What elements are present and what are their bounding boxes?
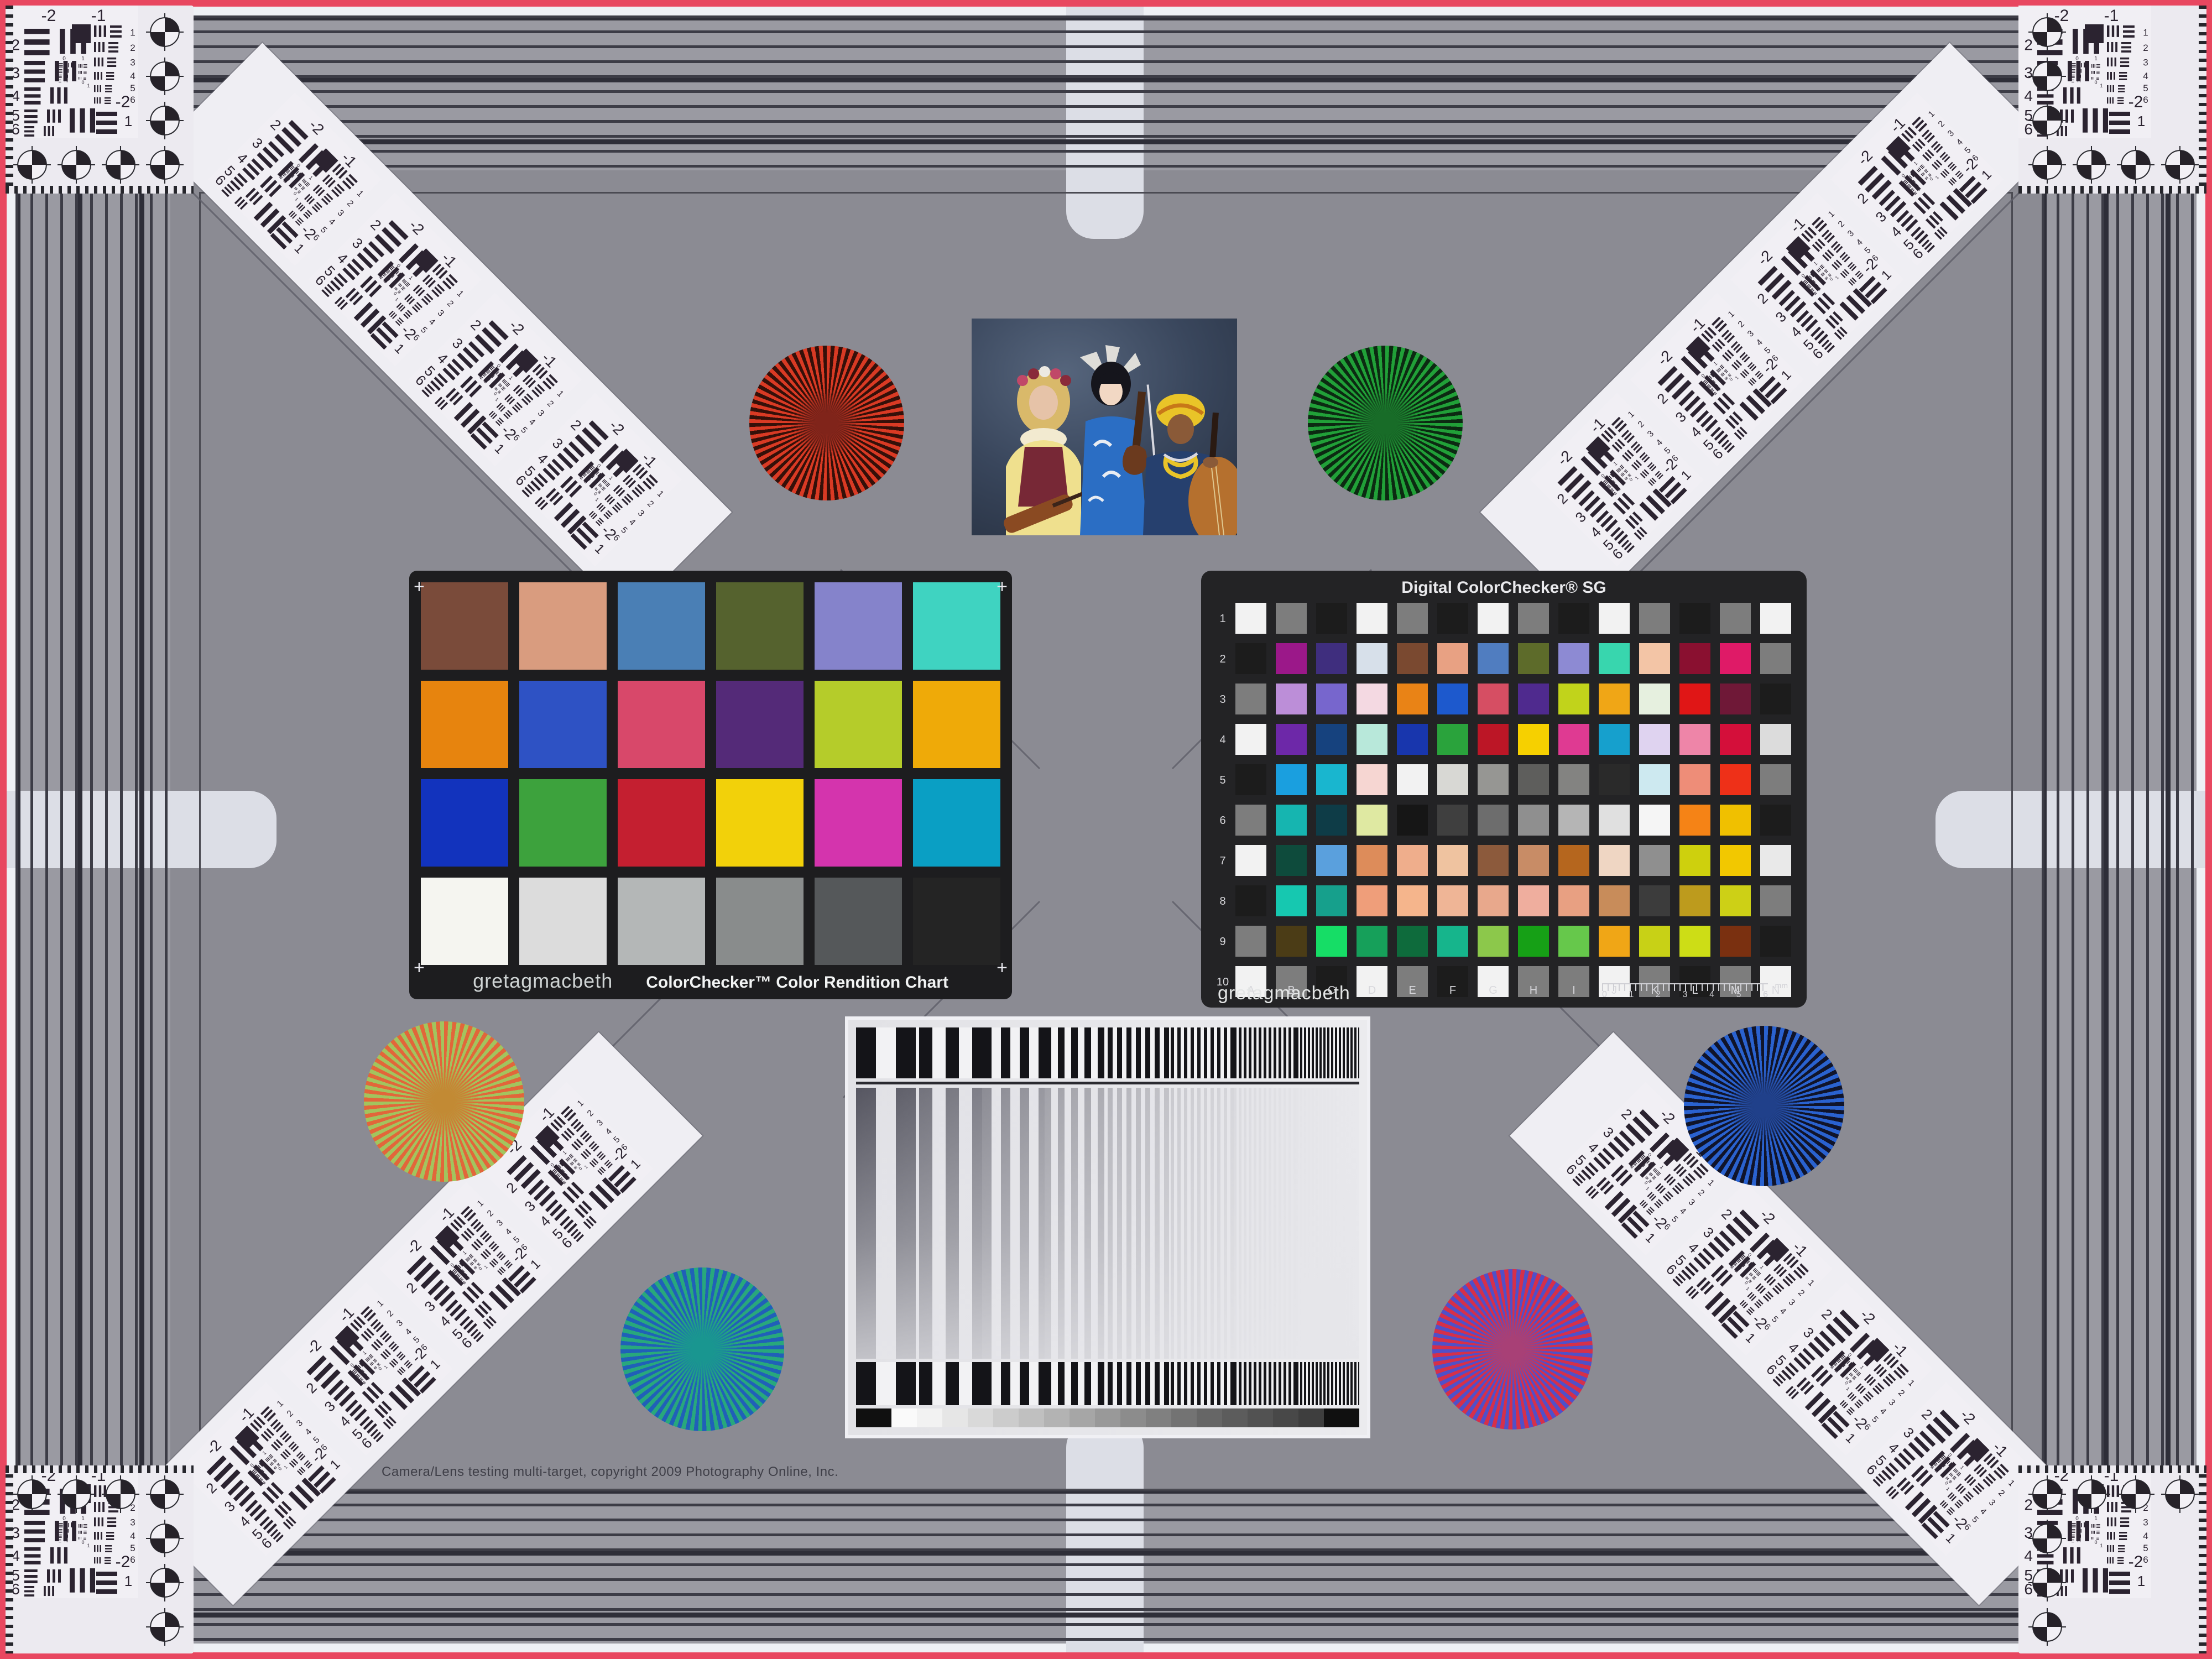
sg-patch bbox=[1639, 603, 1670, 634]
ruler-number: 3 bbox=[1683, 990, 1688, 1000]
sg-patch bbox=[1639, 845, 1670, 876]
sg-patch bbox=[1518, 764, 1549, 795]
sg-patch bbox=[1235, 684, 1266, 714]
sg-patch bbox=[1478, 603, 1509, 634]
sg-patch bbox=[1599, 926, 1630, 957]
registration-plus-icon: + bbox=[997, 584, 1008, 589]
frequency-segment bbox=[1045, 1027, 1108, 1078]
sg-patch bbox=[1679, 643, 1710, 674]
colorchecker-24-chart: + + + + gretagmacbeth ColorChecker™ Colo… bbox=[409, 571, 1012, 999]
grayscale-step-wedge bbox=[856, 1408, 1359, 1427]
colorchecker-patch-grid bbox=[421, 582, 1000, 965]
corner-block-bottom-right bbox=[2018, 1465, 2206, 1653]
siemens-star-amber bbox=[364, 1021, 524, 1182]
sg-patch bbox=[1679, 724, 1710, 755]
cc-patch bbox=[815, 779, 902, 867]
sg-patch bbox=[1276, 724, 1307, 755]
sg-patch bbox=[1276, 764, 1307, 795]
sg-patch bbox=[1478, 724, 1509, 755]
sg-patch bbox=[1720, 845, 1751, 876]
wedge-step bbox=[917, 1408, 942, 1427]
sg-patch bbox=[1599, 764, 1630, 795]
wedge-step bbox=[856, 1408, 891, 1427]
sg-patch bbox=[1235, 643, 1266, 674]
sg-patch bbox=[1276, 885, 1307, 916]
wedge-step bbox=[1070, 1408, 1095, 1427]
quadrant-circle-icon bbox=[58, 1475, 95, 1513]
cc-patch bbox=[913, 779, 1000, 867]
sg-patch bbox=[1316, 684, 1347, 714]
quadrant-circle-icon bbox=[146, 1564, 184, 1601]
quadrant-circle-icon bbox=[2028, 146, 2066, 184]
sg-patch bbox=[1357, 724, 1387, 755]
sg-col-label: E bbox=[1401, 984, 1423, 997]
siemens-star-red bbox=[749, 346, 904, 500]
quadrant-circle-icon bbox=[146, 1608, 184, 1646]
quadrant-circle-icon bbox=[146, 102, 184, 139]
quadrant-circle-icon bbox=[2028, 1608, 2066, 1646]
sg-title-label: Digital ColorChecker® SG bbox=[1201, 578, 1807, 597]
sg-patch bbox=[1235, 603, 1266, 634]
cc-patch bbox=[716, 582, 804, 670]
quadrant-circle-icon bbox=[146, 58, 184, 95]
sg-patch bbox=[1235, 764, 1266, 795]
frequency-segment bbox=[1234, 1027, 1297, 1078]
ruler-number: 2 bbox=[1656, 990, 1661, 1000]
wedge-step bbox=[1146, 1408, 1171, 1427]
sg-patch bbox=[1316, 805, 1347, 836]
ruler-number: 6 bbox=[1763, 990, 1768, 1000]
frequency-segment bbox=[982, 1362, 1045, 1405]
quadrant-circle-icon bbox=[2073, 1475, 2110, 1513]
registration-plus-icon: + bbox=[414, 584, 425, 589]
sg-patch bbox=[1760, 643, 1791, 674]
quadrant-circle-icon bbox=[2028, 13, 2066, 51]
sg-patch bbox=[1760, 764, 1791, 795]
sg-patch bbox=[1760, 845, 1791, 876]
sg-col-label: I bbox=[1563, 984, 1585, 997]
wedge-step bbox=[1324, 1408, 1359, 1427]
sg-patch bbox=[1276, 805, 1307, 836]
quadrant-circle-icon bbox=[146, 1520, 184, 1557]
cc-patch bbox=[815, 582, 902, 670]
cc-patch bbox=[716, 681, 804, 768]
sg-patch bbox=[1518, 603, 1549, 634]
sg-patch bbox=[1558, 643, 1589, 674]
sg-patch bbox=[1720, 603, 1751, 634]
sg-patch bbox=[1518, 684, 1549, 714]
quadrant-circle-icon bbox=[2161, 1475, 2199, 1513]
sg-patch bbox=[1437, 643, 1468, 674]
wedge-step bbox=[1298, 1408, 1324, 1427]
sg-patch bbox=[1679, 805, 1710, 836]
corner-block-top-right bbox=[2018, 6, 2206, 194]
sg-patch bbox=[1437, 764, 1468, 795]
sg-patch bbox=[1357, 764, 1387, 795]
sg-patch bbox=[1558, 926, 1589, 957]
sg-patch bbox=[1316, 643, 1347, 674]
sg-patch bbox=[1437, 885, 1468, 916]
quadrant-circle-icon bbox=[13, 1475, 51, 1513]
sg-patch bbox=[1599, 603, 1630, 634]
sg-patch bbox=[1760, 805, 1791, 836]
quadrant-circle-icon bbox=[102, 1475, 139, 1513]
sg-patch bbox=[1357, 805, 1387, 836]
wedge-step bbox=[1197, 1408, 1222, 1427]
sg-patch bbox=[1639, 805, 1670, 836]
sg-patch bbox=[1518, 845, 1549, 876]
sg-patch bbox=[1720, 764, 1751, 795]
cc-patch bbox=[815, 878, 902, 965]
sg-patch bbox=[1760, 684, 1791, 714]
cc-patch bbox=[618, 681, 705, 768]
sg-patch bbox=[1558, 764, 1589, 795]
frequency-segment bbox=[856, 1362, 919, 1405]
wedge-step bbox=[993, 1408, 1019, 1427]
sg-patch bbox=[1316, 885, 1347, 916]
sg-patch bbox=[1518, 885, 1549, 916]
cc-patch bbox=[421, 582, 508, 670]
sg-patch bbox=[1397, 684, 1428, 714]
musicians-reference-photo bbox=[972, 319, 1237, 535]
quadrant-circle-icon bbox=[2117, 146, 2154, 184]
frequency-bars-top bbox=[856, 1027, 1359, 1078]
ruler-number: 4 bbox=[1709, 990, 1714, 1000]
quadrant-circle-icon bbox=[2073, 146, 2110, 184]
sg-patch bbox=[1679, 684, 1710, 714]
sg-patch bbox=[1437, 926, 1468, 957]
frequency-segment bbox=[1296, 1362, 1359, 1405]
sg-patch bbox=[1397, 643, 1428, 674]
sg-patch bbox=[1397, 764, 1428, 795]
copyright-text: Camera/Lens testing multi-target, copyri… bbox=[382, 1464, 838, 1480]
edge-tick-ruler bbox=[6, 1465, 13, 1653]
quadrant-circle-icon bbox=[2028, 58, 2066, 95]
quadrant-circle-icon bbox=[2028, 1475, 2066, 1513]
sg-patch bbox=[1639, 643, 1670, 674]
sg-col-label: G bbox=[1482, 984, 1504, 997]
colorchecker-title-label: ColorChecker™ Color Rendition Chart bbox=[646, 973, 948, 992]
cc-patch bbox=[815, 681, 902, 768]
frequency-segment bbox=[919, 1362, 982, 1405]
wedge-step bbox=[1019, 1408, 1044, 1427]
sg-patch bbox=[1679, 885, 1710, 916]
sg-patch bbox=[1639, 926, 1670, 957]
usaf-resolution-chart bbox=[6, 6, 138, 138]
sg-patch bbox=[1679, 845, 1710, 876]
frequency-bars-bottom bbox=[856, 1362, 1359, 1405]
frequency-segment bbox=[1234, 1362, 1297, 1405]
sg-patch bbox=[1599, 885, 1630, 916]
sg-patch bbox=[1437, 805, 1468, 836]
sg-patch bbox=[1478, 805, 1509, 836]
cc-patch bbox=[913, 878, 1000, 965]
sg-patch bbox=[1316, 603, 1347, 634]
sg-patch bbox=[1397, 926, 1428, 957]
quadrant-circle-icon bbox=[2028, 102, 2066, 139]
siemens-star-blue bbox=[1684, 1026, 1844, 1186]
sg-patch bbox=[1316, 926, 1347, 957]
sg-brand-label: gretagmacbeth bbox=[1218, 983, 1350, 1004]
ruler-number: 1 bbox=[1629, 990, 1634, 1000]
sg-row-label: 6 bbox=[1214, 815, 1231, 827]
sg-patch bbox=[1235, 885, 1266, 916]
cc-patch bbox=[421, 878, 508, 965]
cc-patch bbox=[618, 582, 705, 670]
sg-patch bbox=[1478, 643, 1509, 674]
wedge-step bbox=[891, 1408, 917, 1427]
sg-patch bbox=[1478, 926, 1509, 957]
sg-patch bbox=[1397, 724, 1428, 755]
sg-patch bbox=[1639, 885, 1670, 916]
sg-patch bbox=[1397, 885, 1428, 916]
wedge-step bbox=[942, 1408, 968, 1427]
sg-patch bbox=[1276, 926, 1307, 957]
sg-patch bbox=[1558, 724, 1589, 755]
sg-patch bbox=[1639, 684, 1670, 714]
sg-patch bbox=[1235, 845, 1266, 876]
edge-tick-ruler bbox=[2018, 186, 2206, 194]
sg-patch bbox=[1357, 643, 1387, 674]
sg-row-label: 3 bbox=[1214, 693, 1231, 706]
sg-patch bbox=[1558, 684, 1589, 714]
sg-patch-grid bbox=[1235, 603, 1791, 997]
sg-patch bbox=[1397, 845, 1428, 876]
cc-patch bbox=[913, 582, 1000, 670]
frequency-segment bbox=[919, 1027, 982, 1078]
sg-mm-ruler: 0123456 mm bbox=[1602, 983, 1785, 1002]
frequency-segment bbox=[1296, 1027, 1359, 1078]
sg-patch bbox=[1720, 885, 1751, 916]
cc-patch bbox=[421, 681, 508, 768]
sg-patch bbox=[1639, 764, 1670, 795]
sg-patch bbox=[1720, 926, 1751, 957]
quadrant-circle-icon bbox=[146, 1475, 184, 1513]
sg-patch bbox=[1599, 805, 1630, 836]
sg-patch bbox=[1599, 724, 1630, 755]
sg-patch bbox=[1518, 643, 1549, 674]
sweep-fade-area bbox=[856, 1088, 1359, 1359]
sg-patch bbox=[1518, 805, 1549, 836]
siemens-star-magenta bbox=[1432, 1269, 1593, 1430]
cc-patch bbox=[519, 582, 607, 670]
ruler-unit-label: mm bbox=[1775, 981, 1788, 990]
sg-patch bbox=[1478, 764, 1509, 795]
sg-col-label: D bbox=[1361, 984, 1383, 997]
sg-row-label: 4 bbox=[1214, 734, 1231, 747]
edge-tick-ruler bbox=[6, 1465, 194, 1473]
sg-patch bbox=[1437, 845, 1468, 876]
sg-patch bbox=[1316, 845, 1347, 876]
ruler-number: 5 bbox=[1736, 990, 1741, 1000]
sg-patch bbox=[1558, 805, 1589, 836]
cc-patch bbox=[618, 779, 705, 867]
frequency-segment bbox=[1171, 1362, 1234, 1405]
quadrant-circle-icon bbox=[146, 13, 184, 51]
sg-patch bbox=[1357, 926, 1387, 957]
sg-patch bbox=[1720, 643, 1751, 674]
quadrant-circle-icon bbox=[102, 146, 139, 184]
sg-patch bbox=[1235, 926, 1266, 957]
sg-col-label: F bbox=[1442, 984, 1464, 997]
wedge-step bbox=[1222, 1408, 1248, 1427]
wedge-step bbox=[1095, 1408, 1120, 1427]
sg-patch bbox=[1760, 926, 1791, 957]
sg-patch bbox=[1316, 764, 1347, 795]
edge-tick-ruler bbox=[2018, 1465, 2206, 1473]
cc-patch bbox=[618, 878, 705, 965]
sg-patch bbox=[1276, 684, 1307, 714]
sg-patch bbox=[1720, 724, 1751, 755]
sg-patch bbox=[1276, 845, 1307, 876]
wedge-step bbox=[968, 1408, 993, 1427]
digital-colorchecker-sg-chart: Digital ColorChecker® SG 12345678910 ABC… bbox=[1201, 571, 1807, 1008]
sg-patch bbox=[1235, 805, 1266, 836]
sg-patch bbox=[1316, 724, 1347, 755]
edge-tick-ruler bbox=[6, 186, 194, 194]
ruler-number: 0 bbox=[1602, 990, 1607, 1000]
sg-row-label: 1 bbox=[1214, 613, 1231, 625]
sg-col-label: H bbox=[1522, 984, 1545, 997]
sg-patch bbox=[1397, 603, 1428, 634]
quadrant-circle-icon bbox=[2028, 1520, 2066, 1557]
cc-patch bbox=[716, 878, 804, 965]
sg-row-label: 9 bbox=[1214, 936, 1231, 948]
sg-patch bbox=[1478, 684, 1509, 714]
wedge-step bbox=[1248, 1408, 1273, 1427]
corner-block-top-left bbox=[6, 6, 194, 194]
quadrant-circle-icon bbox=[13, 146, 51, 184]
sg-patch bbox=[1639, 724, 1670, 755]
cc-patch bbox=[519, 779, 607, 867]
sg-patch bbox=[1518, 724, 1549, 755]
cc-patch bbox=[421, 779, 508, 867]
edge-tick-ruler bbox=[2199, 1465, 2206, 1653]
test-chart-page: -2-123456123456-210101 bbox=[0, 0, 2212, 1659]
siemens-star-teal bbox=[620, 1267, 784, 1431]
sg-patch bbox=[1558, 845, 1589, 876]
edge-tick-ruler bbox=[6, 6, 13, 194]
sg-patch bbox=[1437, 603, 1468, 634]
sg-patch bbox=[1437, 724, 1468, 755]
edge-tick-ruler bbox=[2199, 6, 2206, 194]
sg-patch bbox=[1357, 845, 1387, 876]
quadrant-circle-icon bbox=[2161, 146, 2199, 184]
sg-patch bbox=[1760, 885, 1791, 916]
sg-patch bbox=[1760, 603, 1791, 634]
cc-patch bbox=[519, 681, 607, 768]
sg-patch bbox=[1478, 885, 1509, 916]
cc-patch bbox=[519, 878, 607, 965]
sg-patch bbox=[1679, 764, 1710, 795]
quadrant-circle-icon bbox=[58, 146, 95, 184]
frequency-rule-line bbox=[856, 1082, 1359, 1084]
frequency-segment bbox=[856, 1027, 919, 1078]
sg-patch bbox=[1558, 603, 1589, 634]
sg-patch bbox=[1276, 603, 1307, 634]
sg-patch bbox=[1357, 603, 1387, 634]
sg-row-label: 7 bbox=[1214, 855, 1231, 868]
wedge-step bbox=[1171, 1408, 1197, 1427]
frequency-segment bbox=[1108, 1027, 1171, 1078]
sg-row-label: 5 bbox=[1214, 774, 1231, 787]
cc-patch bbox=[716, 779, 804, 867]
sg-patch bbox=[1599, 684, 1630, 714]
quadrant-circle-icon bbox=[2117, 1475, 2154, 1513]
sg-patch bbox=[1397, 805, 1428, 836]
frequency-segment bbox=[1045, 1362, 1108, 1405]
sg-patch bbox=[1679, 603, 1710, 634]
frequency-sweep-chart bbox=[845, 1016, 1370, 1438]
frequency-segment bbox=[1171, 1027, 1234, 1078]
cc-patch bbox=[913, 681, 1000, 768]
sg-patch bbox=[1760, 724, 1791, 755]
sg-patch bbox=[1357, 885, 1387, 916]
sg-patch bbox=[1276, 643, 1307, 674]
sg-patch bbox=[1679, 926, 1710, 957]
sg-row-label: 8 bbox=[1214, 895, 1231, 908]
sg-patch bbox=[1357, 684, 1387, 714]
corner-block-bottom-left bbox=[6, 1465, 194, 1653]
colorchecker-brand-label: gretagmacbeth bbox=[473, 969, 613, 993]
frequency-segment bbox=[1108, 1362, 1171, 1405]
sg-patch bbox=[1720, 684, 1751, 714]
frequency-segment bbox=[982, 1027, 1045, 1078]
sg-patch bbox=[1599, 845, 1630, 876]
quadrant-circle-icon bbox=[146, 146, 184, 184]
quadrant-circle-icon bbox=[2028, 1564, 2066, 1601]
wedge-step bbox=[1120, 1408, 1146, 1427]
sg-patch bbox=[1235, 724, 1266, 755]
sg-patch bbox=[1518, 926, 1549, 957]
sg-patch bbox=[1720, 805, 1751, 836]
ruler-numbers: 0123456 bbox=[1602, 990, 1768, 1000]
siemens-star-green bbox=[1308, 346, 1463, 500]
sg-patch bbox=[1478, 845, 1509, 876]
sg-row-label: 2 bbox=[1214, 653, 1231, 666]
sg-patch bbox=[1437, 684, 1468, 714]
wedge-step bbox=[1044, 1408, 1070, 1427]
sg-patch bbox=[1599, 643, 1630, 674]
sg-patch bbox=[1558, 885, 1589, 916]
wedge-step bbox=[1273, 1408, 1298, 1427]
